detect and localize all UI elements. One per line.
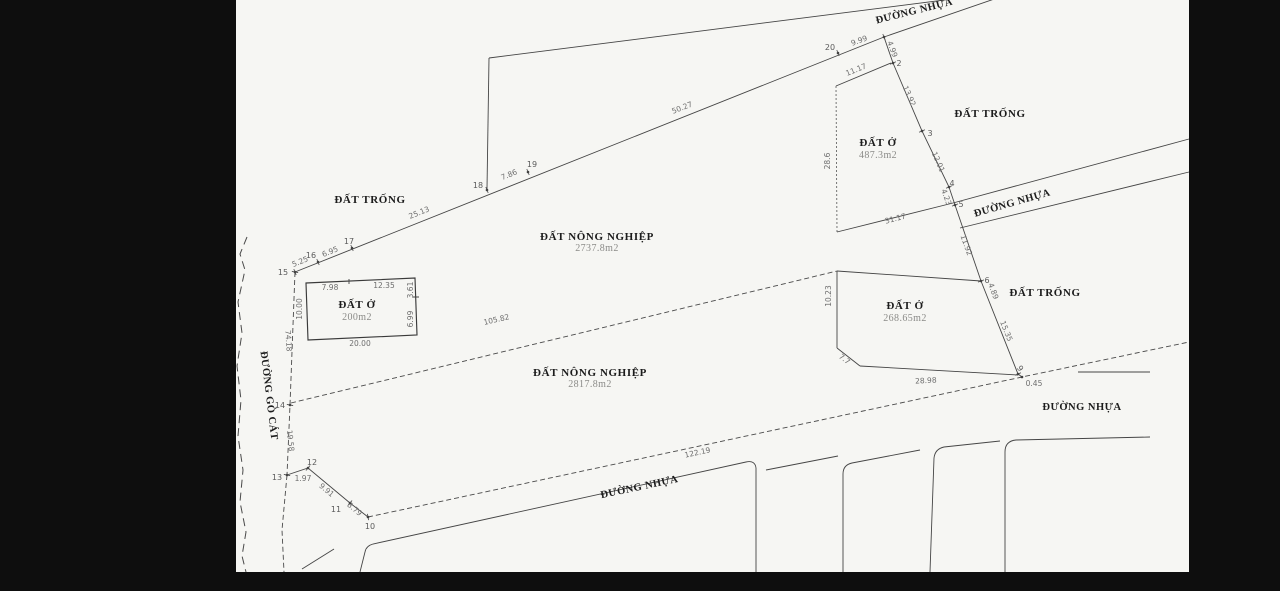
parcel-label-agri-upper: ĐẤT NÔNG NGHIỆP bbox=[540, 230, 654, 243]
point-label-18: 18 bbox=[473, 181, 483, 190]
point-label-20: 20 bbox=[825, 43, 835, 52]
dim-12-35: 12.35 bbox=[373, 281, 395, 290]
point-label-3: 3 bbox=[927, 129, 932, 138]
point-label-13: 13 bbox=[272, 473, 282, 482]
point-label-4: 4 bbox=[949, 179, 954, 188]
parcel-area-res268: 268.65m2 bbox=[883, 313, 926, 324]
survey-point-dot bbox=[1021, 376, 1024, 379]
parcel-label-vacant-right: ĐẤT TRỐNG bbox=[1009, 286, 1080, 299]
dim-10-00: 10.00 bbox=[295, 298, 304, 320]
dim-3-61: 3.61 bbox=[406, 281, 415, 298]
parcel-label-vacant-top-right: ĐẤT TRỐNG bbox=[954, 107, 1025, 120]
dim-28-6: 28.6 bbox=[823, 152, 832, 169]
dim-28-98: 28.98 bbox=[915, 375, 937, 385]
point-label-12: 12 bbox=[307, 458, 317, 467]
point-label-15: 15 bbox=[278, 268, 288, 277]
parcel-area-agri-upper: 2737.8m2 bbox=[575, 243, 618, 254]
parcel-area-res487: 487.3m2 bbox=[859, 150, 897, 161]
dim-74-18: 74.18 bbox=[283, 330, 293, 352]
parcel-label-vacant-top-left: ĐẤT TRỐNG bbox=[334, 193, 405, 206]
dim-1-97: 1.97 bbox=[295, 474, 312, 483]
dim-0-45: 0.45 bbox=[1026, 379, 1043, 388]
point-label-17: 17 bbox=[344, 237, 354, 246]
dim-6-99: 6.99 bbox=[406, 310, 415, 327]
dim-7-98: 7.98 bbox=[322, 283, 339, 292]
cadastral-map: ĐƯỜNG NHỰA ĐƯỜNG NHỰA ĐƯỜNG NHỰA ĐƯỜNG N… bbox=[0, 0, 1280, 591]
point-label-19: 19 bbox=[527, 160, 537, 169]
dim-20-00: 20.00 bbox=[349, 339, 371, 348]
parcel-label-agri-lower: ĐẤT NÔNG NGHIỆP bbox=[533, 366, 647, 379]
parcel-area-res200: 200m2 bbox=[342, 312, 372, 323]
dim-10-23: 10.23 bbox=[824, 285, 833, 307]
parcel-area-agri-lower: 2817.8m2 bbox=[568, 379, 611, 390]
road-label-bottom-right: ĐƯỜNG NHỰA bbox=[1042, 401, 1121, 413]
parcel-label-res268: ĐẤT Ở bbox=[886, 299, 923, 312]
parcel-label-res487: ĐẤT Ở bbox=[859, 136, 896, 149]
survey-map-viewport: ĐƯỜNG NHỰA ĐƯỜNG NHỰA ĐƯỜNG NHỰA ĐƯỜNG N… bbox=[0, 0, 1280, 591]
parcel-label-res200: ĐẤT Ở bbox=[338, 298, 375, 311]
point-label-11: 11 bbox=[331, 505, 341, 514]
point-label-10: 10 bbox=[365, 522, 375, 531]
point-label-2: 2 bbox=[896, 59, 901, 68]
point-label-14: 14 bbox=[275, 401, 285, 410]
point-label-5: 5 bbox=[958, 200, 963, 209]
